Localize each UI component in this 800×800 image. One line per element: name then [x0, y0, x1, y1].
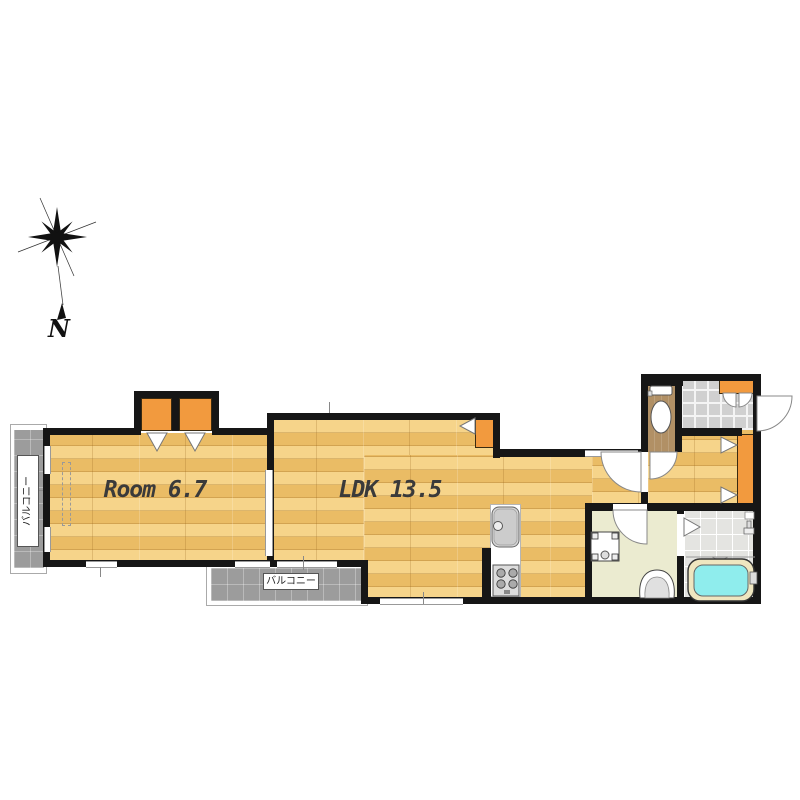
folding-door-icon [147, 433, 167, 451]
shoe-cabinet-door-leaf [723, 393, 736, 407]
folding-door-icon [721, 437, 737, 453]
gas-stove [493, 565, 519, 596]
entry-door-arc [757, 396, 792, 431]
toilet-fixture [648, 386, 672, 433]
kitchen-sink [492, 507, 519, 547]
bathtub [686, 557, 757, 601]
shoe-cabinet-door-leaf [739, 393, 752, 407]
washbasin [640, 570, 675, 598]
washing-machine-pan [591, 532, 619, 561]
door-arcs [601, 393, 792, 544]
floorplan-canvas: Room 6.7 LDK 13.5 バルコニー バルコニー N [0, 0, 800, 800]
folding-door-icon [460, 418, 475, 434]
compass-north-label: N [48, 314, 70, 343]
folding-door-icon [684, 518, 700, 536]
balcony-bottom-label: バルコニー [263, 573, 319, 590]
shower-faucet [744, 512, 754, 534]
symbols-overlay [0, 0, 800, 800]
folding-door-icon [721, 487, 737, 503]
ldk-door-arc [601, 452, 641, 492]
folding-door-icon [185, 433, 205, 451]
compass-rose [18, 198, 96, 320]
ldk-label: LDK 13.5 [335, 477, 445, 503]
toilet-door-arc [650, 452, 677, 479]
balcony-left-label: バルコニー [17, 455, 39, 547]
room-label: Room 6.7 [100, 477, 210, 503]
